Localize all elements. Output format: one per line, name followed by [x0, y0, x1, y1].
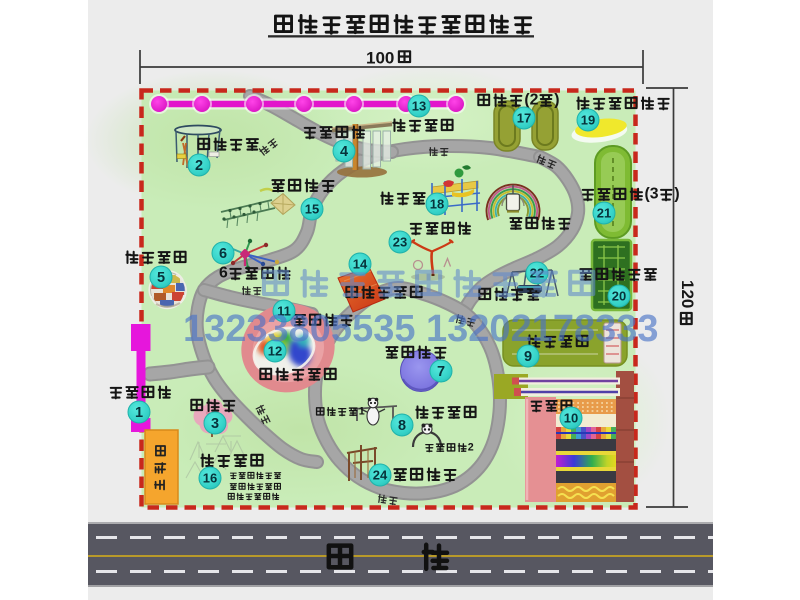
svg-text:100: 100: [366, 49, 394, 68]
svg-text:3: 3: [211, 416, 219, 432]
svg-text:23: 23: [393, 235, 407, 250]
svg-text:16: 16: [203, 471, 217, 486]
svg-text:5: 5: [157, 270, 165, 286]
svg-text:7: 7: [437, 364, 445, 380]
svg-text:2: 2: [195, 158, 203, 174]
svg-text:): ): [554, 91, 559, 108]
svg-text:15: 15: [305, 202, 319, 217]
svg-text:8: 8: [398, 418, 406, 434]
svg-text:6: 6: [219, 264, 228, 281]
svg-text:1: 1: [135, 405, 143, 421]
svg-text:10: 10: [564, 411, 578, 426]
svg-text:18: 18: [430, 197, 444, 212]
svg-text:21: 21: [597, 206, 611, 221]
svg-text:1: 1: [359, 405, 365, 417]
svg-text:19: 19: [581, 113, 595, 128]
svg-text:13: 13: [412, 99, 426, 114]
svg-text:120: 120: [678, 280, 697, 308]
svg-text:4: 4: [340, 144, 348, 160]
svg-text:6: 6: [219, 246, 227, 262]
svg-text:(2: (2: [524, 91, 538, 108]
svg-text:(3: (3: [645, 185, 659, 202]
svg-text:): ): [674, 185, 679, 202]
svg-text:2: 2: [468, 441, 474, 453]
svg-text:17: 17: [517, 111, 531, 126]
svg-text:14: 14: [353, 257, 368, 272]
svg-text:20: 20: [612, 289, 626, 304]
svg-text:24: 24: [373, 468, 388, 483]
svg-text:13233805535 13202178333: 13233805535 13202178333: [183, 308, 659, 350]
svg-text:9: 9: [524, 349, 532, 365]
